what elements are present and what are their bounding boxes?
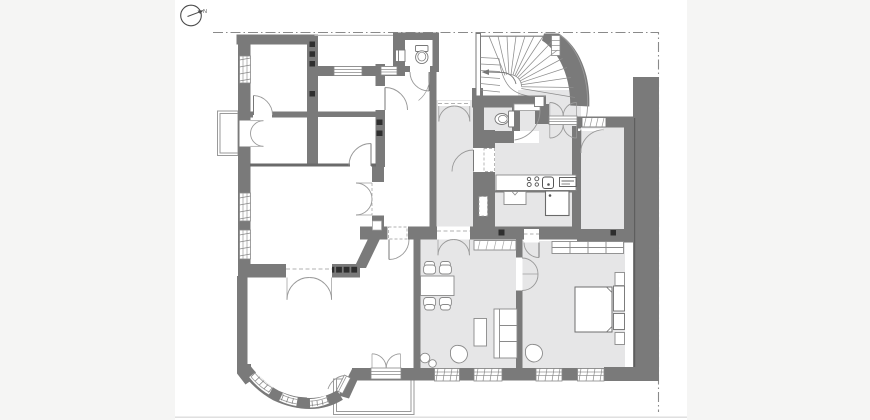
svg-text:N: N [203, 9, 207, 15]
